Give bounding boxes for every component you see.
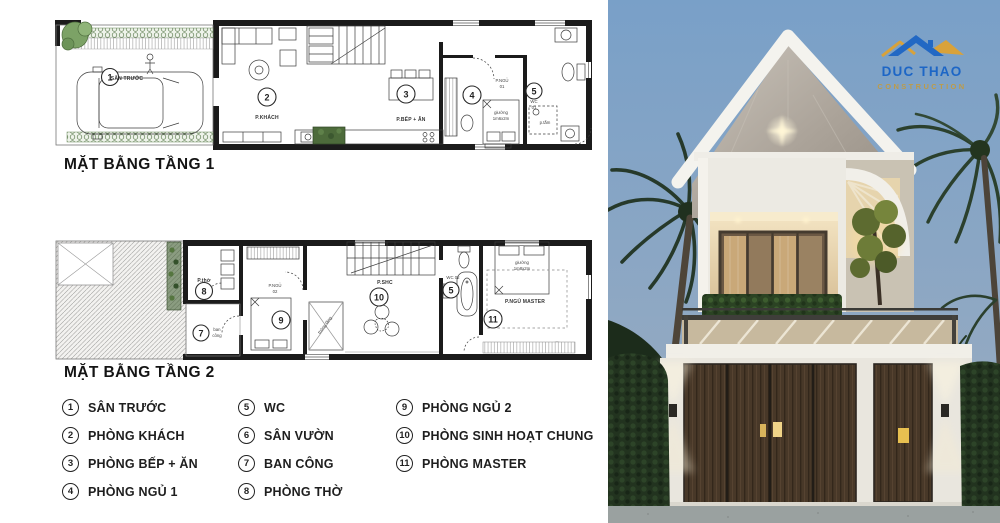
svg-text:01: 01	[500, 84, 505, 89]
svg-text:1m6x2m: 1m6x2m	[493, 116, 510, 121]
svg-text:02: 02	[273, 289, 278, 294]
legend-number: 7	[238, 455, 255, 472]
svg-text:01: 01	[532, 105, 537, 110]
legend-number: 1	[62, 399, 79, 416]
plan2-stairs	[347, 242, 435, 275]
legend-item: 3PHÒNG BẾP + ĂN	[62, 455, 238, 472]
legend-item: 11PHÒNG MASTER	[396, 455, 602, 472]
logo-subtitle: CONSTRUCTION	[877, 82, 966, 91]
svg-text:5: 5	[448, 286, 453, 296]
floor-plans-panel: 1 SÂN TRƯỚC 2 P.KHÁCH 3 P.BẾP + ĂN 4 P.N…	[0, 0, 608, 523]
gate-handle	[760, 424, 766, 437]
svg-text:11: 11	[488, 315, 498, 325]
legend-label: PHÒNG BẾP + ĂN	[88, 457, 198, 471]
render-drawing: DUC THAO CONSTRUCTION	[608, 0, 1000, 523]
legend-number: 3	[62, 455, 79, 472]
legend-label: PHÒNG MASTER	[422, 457, 527, 471]
floor-plan-1-title: MẶT BẰNG TẦNG 1	[64, 156, 215, 174]
plan2-master	[483, 242, 575, 353]
legend-number: 6	[238, 427, 255, 444]
legend-item: 6SÂN VƯỜN	[238, 427, 396, 444]
legend-column-3: 9PHÒNG NGỦ 2 10PHÒNG SINH HOẠT CHUNG 11P…	[396, 399, 602, 511]
svg-text:9: 9	[278, 316, 283, 326]
svg-text:10: 10	[374, 293, 384, 303]
plan1-windows	[453, 21, 591, 150]
legend-item: 10PHÒNG SINH HOẠT CHUNG	[396, 427, 602, 444]
svg-text:2: 2	[264, 93, 269, 103]
legend-label: WC	[264, 401, 285, 415]
plan1-stairs	[307, 26, 385, 64]
legend-column-2: 5WC 6SÂN VƯỜN 7BAN CÔNG 8PHÒNG THỜ	[238, 399, 396, 511]
driveway	[608, 506, 1000, 523]
svg-text:8: 8	[201, 287, 206, 297]
svg-text:1m8x2m: 1m8x2m	[514, 266, 531, 271]
door-keypad	[898, 428, 909, 443]
svg-text:3: 3	[403, 90, 408, 100]
room-label-san-truoc: SÂN TRƯỚC	[111, 74, 144, 82]
legend-item: 7BAN CÔNG	[238, 455, 396, 472]
floor-plan-2-title: MẶT BẰNG TẦNG 2	[64, 364, 215, 382]
legend-number: 9	[396, 399, 413, 416]
hedge-right	[960, 361, 1000, 523]
legend-column-1: 1SÂN TRƯỚC 2PHÒNG KHÁCH 3PHÒNG BẾP + ĂN …	[62, 399, 238, 511]
legend-label: PHÒNG KHÁCH	[88, 429, 185, 443]
plan1-bedroom1	[445, 58, 519, 148]
plan2-bedroom2	[247, 247, 303, 350]
legend-number: 10	[396, 427, 413, 444]
legend-label: PHÒNG NGỦ 1	[88, 485, 178, 499]
plan1-kitchen	[295, 70, 443, 144]
plan1-callouts: 1 SÂN TRƯỚC 2 P.KHÁCH 3 P.BẾP + ĂN 4 P.N…	[102, 69, 551, 126]
legend-label: BAN CÔNG	[264, 457, 334, 471]
legend-label: SÂN VƯỜN	[264, 429, 334, 443]
room-label-pkhach: P.KHÁCH	[255, 114, 279, 121]
pergola	[682, 315, 958, 345]
svg-text:7: 7	[198, 329, 203, 339]
bed-master-label: giường	[515, 260, 529, 265]
room-label-pbep: P.BẾP + ĂN	[396, 116, 425, 123]
bath-label: p.tắm	[540, 120, 551, 125]
room-label-bancong: ban	[213, 327, 221, 332]
legend-item: 2PHÒNG KHÁCH	[62, 427, 238, 444]
gate-handle	[773, 422, 782, 437]
legend-item: 5WC	[238, 399, 396, 416]
legend-label: PHÒNG SINH HOẠT CHUNG	[422, 429, 594, 443]
legend-number: 4	[62, 483, 79, 500]
plan2-callouts: P.thờ 8 7 ban công P.NGỦ 02 9 P.SHC 10 W…	[193, 260, 545, 341]
bed1-label: giường	[494, 110, 508, 115]
person-icon	[145, 54, 155, 74]
legend-item: 1SÂN TRƯỚC	[62, 399, 238, 416]
page: 1 SÂN TRƯỚC 2 P.KHÁCH 3 P.BẾP + ĂN 4 P.N…	[0, 0, 1000, 523]
plan1-front-yard	[56, 22, 213, 145]
floor-plan-1-drawing: 1 SÂN TRƯỚC 2 P.KHÁCH 3 P.BẾP + ĂN 4 P.N…	[55, 20, 592, 150]
legend-number: 8	[238, 483, 255, 500]
hedge-left	[608, 353, 670, 523]
plan1-living-room	[222, 28, 296, 142]
plan2-shc	[345, 305, 439, 352]
legend-label: SÂN TRƯỚC	[88, 401, 166, 415]
void-label: thông tầng	[317, 315, 333, 335]
legend-item: 4PHÒNG NGỦ 1	[62, 483, 238, 500]
legend-item: 9PHÒNG NGỦ 2	[396, 399, 602, 416]
legend-label: PHÒNG THỜ	[264, 485, 342, 499]
legend: 1SÂN TRƯỚC 2PHÒNG KHÁCH 3PHÒNG BẾP + ĂN …	[62, 399, 602, 511]
room-label-pshc: P.SHC	[377, 280, 393, 286]
svg-text:4: 4	[469, 91, 474, 101]
plan2-windows	[305, 241, 591, 360]
gable-star-light	[766, 115, 798, 147]
plan2-terrace	[56, 241, 186, 359]
svg-text:5: 5	[531, 87, 536, 97]
room-label-pngu1: P.NGỦ	[495, 78, 508, 83]
entry-door	[874, 364, 932, 502]
room-label-wc2: WC 02	[446, 275, 460, 280]
exterior-render-photo: DUC THAO CONSTRUCTION	[608, 0, 1000, 523]
legend-number: 5	[238, 399, 255, 416]
room-label-master: P.NGỦ MASTER	[505, 298, 545, 305]
room-label-pngu2: P.NGỦ	[268, 283, 281, 288]
legend-label: PHÒNG NGỦ 2	[422, 401, 512, 415]
legend-number: 2	[62, 427, 79, 444]
legend-item: 8PHÒNG THỜ	[238, 483, 396, 500]
room-label-wc1: WC	[530, 99, 537, 104]
main-gate-door	[684, 364, 856, 504]
svg-text:công: công	[212, 333, 222, 338]
plan2-wc2	[443, 246, 479, 352]
legend-number: 11	[396, 455, 413, 472]
logo-name: DUC THAO	[882, 64, 963, 79]
floor-plan-2-drawing: P.thờ 8 7 ban công P.NGỦ 02 9 P.SHC 10 W…	[55, 240, 592, 360]
